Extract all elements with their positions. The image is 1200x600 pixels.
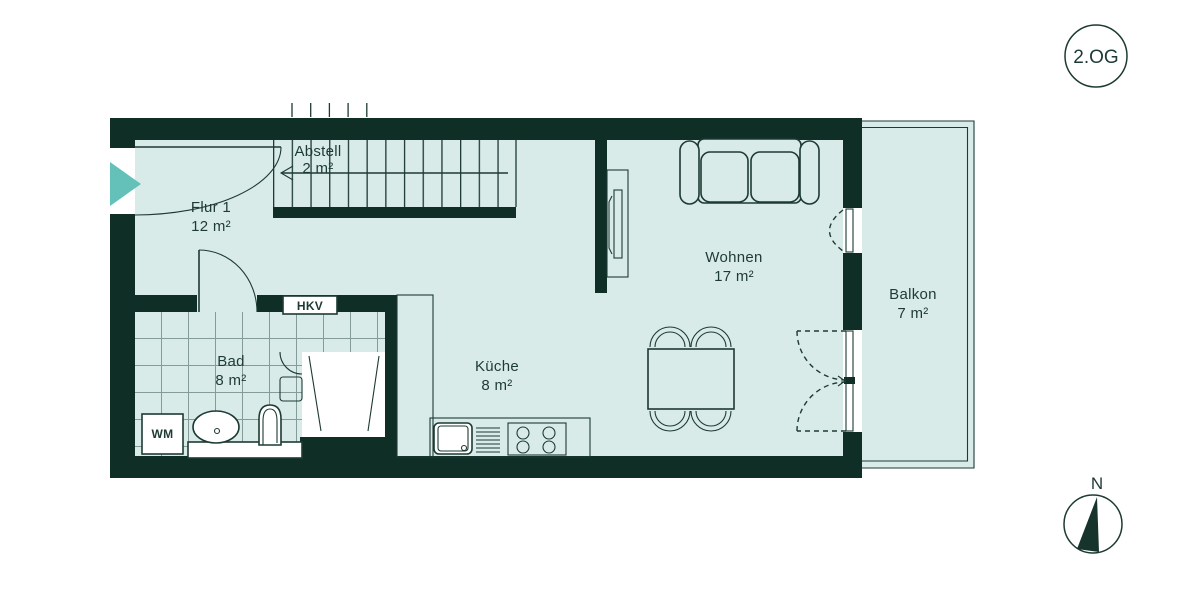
room-wohnen-area: 17 m² [714, 268, 754, 285]
wall-bath-top-left [135, 295, 197, 312]
hkv-unit: HKV [283, 296, 337, 314]
wall-under-shower [300, 437, 397, 458]
sofa [680, 139, 819, 204]
room-bad-name: Bad [217, 353, 245, 370]
compass-icon: N [1064, 474, 1122, 553]
room-abstell-name: Abstell [294, 143, 341, 160]
room-abstell-area: 2 m² [302, 160, 333, 177]
room-kueche-area: 8 m² [481, 377, 512, 394]
room-flur-name: Flur 1 [191, 199, 231, 216]
washing-machine-label: WM [152, 427, 174, 441]
room-balkon-name: Balkon [889, 286, 937, 303]
wall-living-divider [595, 140, 607, 293]
sink-drainer [476, 428, 500, 452]
room-balkon-area: 7 m² [897, 305, 928, 322]
wall-left-upper [110, 118, 135, 148]
compass-north-label: N [1091, 474, 1103, 493]
hkv-label: HKV [297, 299, 323, 313]
floorplan-svg: HKV WM [0, 0, 1200, 600]
room-wohnen-name: Wohnen [705, 249, 762, 266]
room-flur-area: 12 m² [191, 218, 231, 235]
wall-top [110, 118, 862, 140]
wall-bath-kitchen [385, 312, 397, 458]
dining-table [648, 349, 734, 409]
wall-right-lower [843, 432, 862, 478]
wall-right-upper [843, 118, 862, 208]
room-bad-area: 8 m² [215, 372, 246, 389]
toilet [259, 405, 281, 445]
vanity-counter [188, 442, 302, 458]
stair-upper-flight-ticks [292, 103, 367, 117]
floor-badge: 2.OG [1065, 25, 1127, 87]
wall-right-middle [843, 253, 862, 330]
room-kueche-name: Küche [475, 358, 519, 375]
wall-left-lower [110, 214, 135, 478]
washbasin [193, 411, 239, 443]
floor-badge-label: 2.OG [1073, 47, 1118, 68]
kitchen-sink [434, 423, 472, 454]
wall-bottom [110, 456, 862, 478]
wall-stair-edge [273, 207, 516, 218]
floorplan-page: HKV WM [0, 0, 1200, 600]
